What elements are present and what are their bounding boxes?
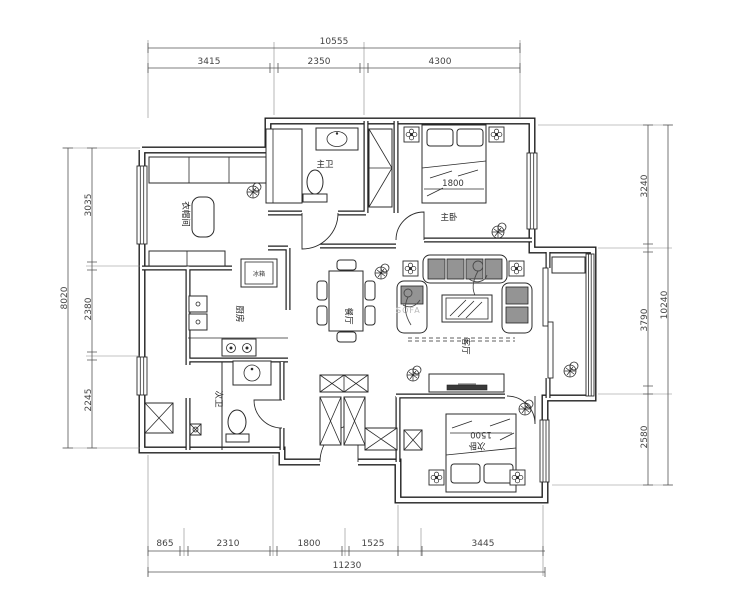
master-bath-label: 主卫 [316, 159, 334, 170]
plant-icon [492, 223, 506, 238]
dimension-right: 3240 3790 2580 10240 [538, 125, 673, 485]
dim-right-total: 10240 [660, 290, 670, 319]
plant-icon [407, 366, 421, 381]
second-bed-size-label: 1500 [470, 429, 492, 439]
sofa-end-table-right [509, 261, 524, 276]
dim-left-total: 8020 [60, 286, 70, 309]
master-bed: 1800 [422, 125, 486, 203]
second-bath-toilet [226, 410, 249, 442]
second-bath-sink [233, 361, 271, 385]
dim-top-seg-1: 3415 [198, 57, 221, 67]
master-shower [266, 129, 302, 203]
floor-drain [190, 424, 201, 435]
dim-left-seg-3: 2245 [84, 389, 94, 412]
cloakroom-window [137, 166, 147, 244]
floor-plan-page: 冰箱 [0, 0, 740, 600]
plant-icon [375, 264, 389, 279]
kitchen-label: 厨房 [234, 305, 245, 322]
balcony-sliding-door [543, 268, 553, 378]
second-bath-label: 次卫 [213, 390, 224, 408]
cloakroom-label: 衣帽间 [180, 201, 191, 227]
dim-left-seg-1: 3035 [84, 194, 94, 217]
dim-top-seg-3: 4300 [429, 57, 452, 67]
master-wardrobe [369, 129, 392, 207]
master-nightstand-left [404, 127, 419, 142]
dining-label: 餐厅 [343, 307, 353, 325]
cloakroom-island [192, 197, 214, 237]
hallway-cabinets [320, 375, 422, 450]
plant-icon [247, 183, 261, 198]
master-nightstand-right [489, 127, 504, 142]
kitchen-sink [189, 296, 207, 330]
second-bath-door [254, 400, 282, 428]
living-label: 客厅 [460, 337, 471, 355]
coffee-table [442, 295, 492, 322]
fridge: 冰箱 [241, 259, 277, 287]
dim-right-seg-2: 3790 [640, 308, 650, 331]
dim-top-seg-2: 2350 [308, 57, 331, 67]
plant-icon [519, 400, 533, 415]
second-nightstand-left [429, 470, 444, 485]
master-bedroom-label: 主卧 [440, 212, 458, 223]
dim-right-seg-3: 2580 [640, 425, 650, 448]
master-sink [316, 128, 358, 150]
balcony-cabinet [552, 257, 585, 273]
dim-bottom-seg-3: 1800 [298, 539, 321, 549]
stove [188, 338, 288, 356]
sofa-end-table-left [403, 261, 418, 276]
second-bed: 1500 [446, 414, 516, 492]
dim-bottom-seg-4: 1525 [362, 539, 385, 549]
dimension-top: 10555 3415 2350 4300 [148, 37, 520, 118]
dim-right-seg-1: 3240 [640, 174, 650, 197]
dimension-left: 8020 3035 2380 2245 [60, 148, 140, 448]
plant-icon [564, 362, 578, 377]
floor-plan-canvas: 冰箱 [0, 0, 740, 600]
second-bedroom-window [540, 420, 549, 482]
dim-bottom-seg-5: 3445 [472, 539, 495, 549]
dim-bottom-seg-2: 2310 [217, 539, 240, 549]
dim-bottom-total: 11230 [333, 561, 362, 571]
second-nightstand-right [510, 470, 525, 485]
master-bed-size-label: 1800 [442, 179, 464, 189]
balcony-window [586, 254, 594, 396]
master-toilet [303, 170, 327, 202]
fridge-label: 冰箱 [253, 270, 265, 278]
dining-set [317, 260, 375, 342]
washing-machine [145, 403, 173, 433]
second-bedroom-label: 次卧 [468, 440, 486, 451]
master-bedroom-window [527, 153, 537, 229]
master-bedroom-door [396, 212, 424, 240]
tv-cabinet [429, 374, 504, 392]
dim-left-seg-2: 2380 [84, 297, 94, 320]
laundry-window [137, 357, 147, 395]
dim-top-total: 10555 [320, 37, 349, 47]
dim-bottom-seg-1: 865 [156, 539, 173, 549]
